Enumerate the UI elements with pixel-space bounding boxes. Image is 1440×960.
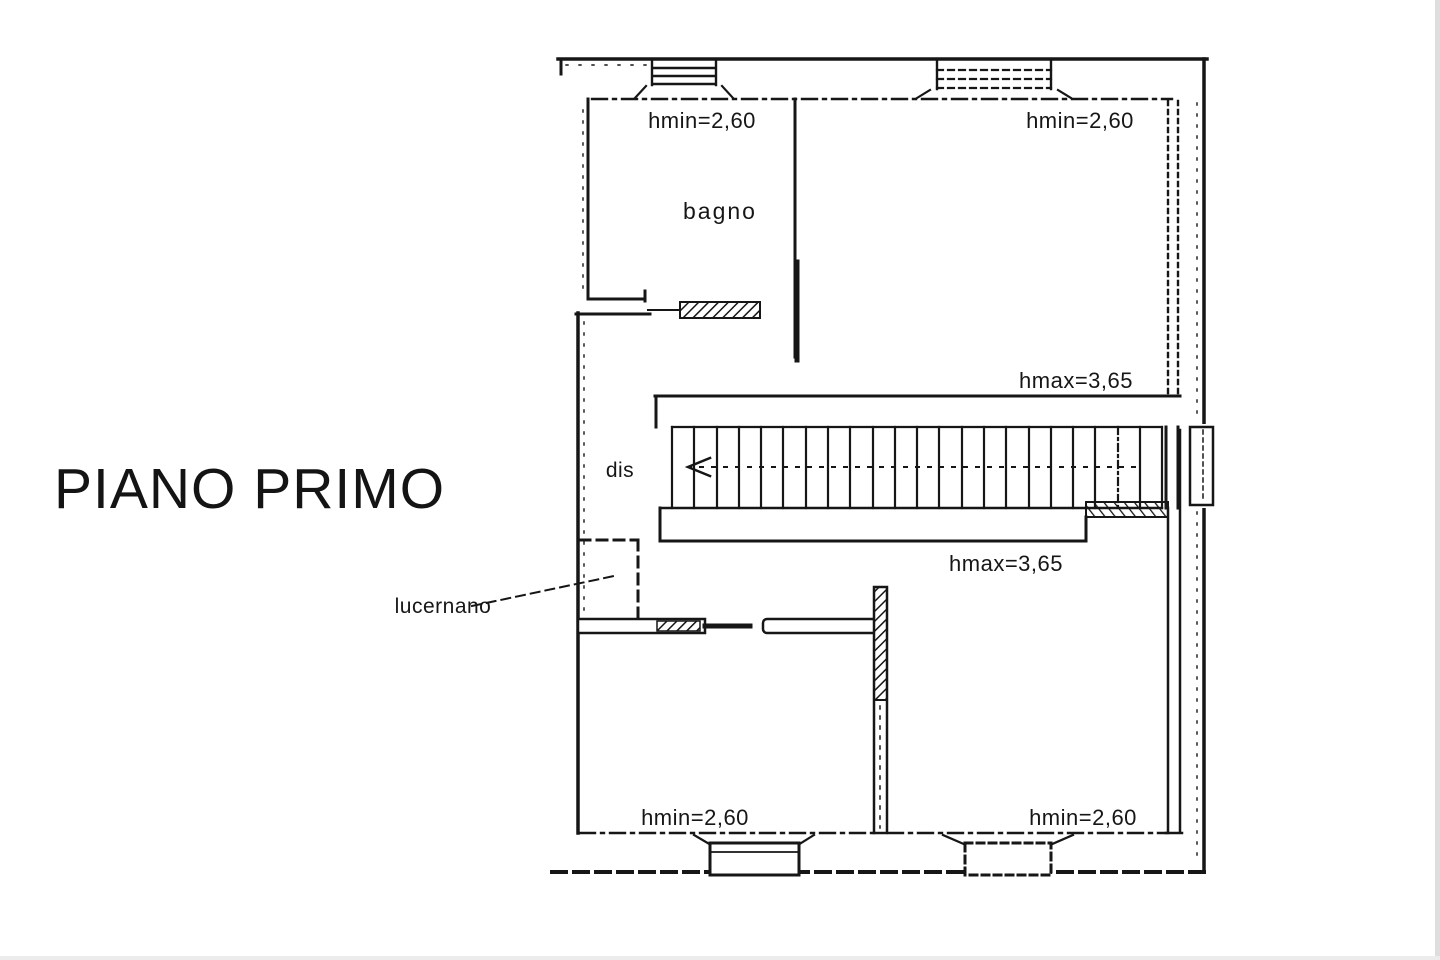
window-top-right-bars	[937, 70, 1051, 88]
stair-right-cap	[1166, 427, 1178, 508]
height-label-stair-lower: hmax=3,65	[949, 551, 1063, 576]
height-label-bottom-right: hmin=2,60	[1029, 805, 1137, 830]
mid-wall-door-hatched	[657, 621, 700, 631]
height-label-bottom-left: hmin=2,60	[641, 805, 749, 830]
window-top-right-splays	[917, 90, 1071, 98]
mid-wall-right-segment	[763, 619, 877, 633]
skylight-dashed-outline	[580, 540, 638, 628]
scan-artifact-right-edge	[1435, 0, 1440, 960]
room-label-dis: dis	[606, 459, 634, 482]
stair-landing-hatched-band	[1086, 502, 1168, 517]
interior-wall-right-dashed	[1168, 101, 1178, 394]
scanned-floor-plan-page: PIANO PRIMO	[0, 0, 1440, 960]
interior-wall-right-lower	[1166, 430, 1182, 833]
height-label-top-right: hmin=2,60	[1026, 108, 1134, 133]
floor-plan-drawing: hmin=2,60 hmin=2,60 bagno hmax=3,65 dis …	[0, 0, 1440, 960]
window-top-right-jambs	[937, 60, 1051, 89]
stair-top-wall	[655, 396, 1180, 427]
divider-wall-hatched-top	[874, 587, 887, 700]
skylight-leader-line	[472, 576, 614, 606]
bagno-door-hatched	[680, 302, 760, 318]
window-bottom-right	[965, 843, 1051, 875]
window-bottom-left	[710, 843, 799, 875]
room-label-bagno: bagno	[683, 198, 757, 224]
window-top-left-splays	[635, 86, 733, 98]
height-label-stair-upper: hmax=3,65	[1019, 368, 1133, 393]
bagno-wall-bottom	[588, 291, 645, 301]
scan-artifact-bottom-edge	[0, 956, 1440, 960]
skylight-label: lucernano	[395, 595, 492, 618]
height-label-top-left: hmin=2,60	[648, 108, 756, 133]
stair-bottom-strip	[660, 508, 1086, 541]
window-top-left	[652, 60, 716, 85]
